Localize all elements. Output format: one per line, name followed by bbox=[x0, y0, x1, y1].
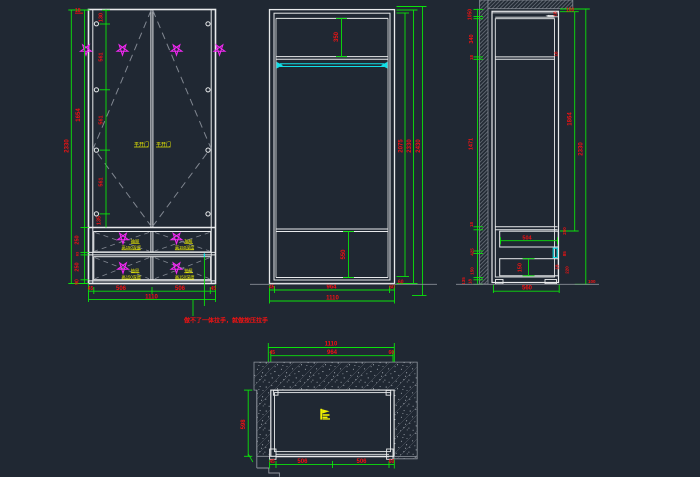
svg-text:425: 425 bbox=[470, 248, 475, 256]
svg-text:90: 90 bbox=[75, 279, 81, 285]
svg-text:45: 45 bbox=[270, 350, 276, 356]
svg-text:561: 561 bbox=[99, 52, 105, 61]
svg-text:60: 60 bbox=[389, 284, 395, 290]
svg-text:18: 18 bbox=[468, 279, 473, 285]
svg-text:18: 18 bbox=[469, 55, 474, 61]
svg-text:1050: 1050 bbox=[468, 9, 474, 20]
svg-text:1864: 1864 bbox=[568, 112, 574, 126]
svg-text:做不了一体拉手，就做按压拉手: 做不了一体拉手，就做按压拉手 bbox=[183, 317, 268, 325]
svg-text:560: 560 bbox=[522, 286, 533, 292]
svg-text:1110: 1110 bbox=[145, 294, 158, 300]
svg-text:550: 550 bbox=[341, 249, 347, 260]
svg-text:2430: 2430 bbox=[416, 139, 422, 153]
svg-text:150: 150 bbox=[470, 267, 475, 275]
svg-text:130: 130 bbox=[99, 13, 105, 22]
svg-text:45: 45 bbox=[269, 459, 275, 465]
svg-text:598: 598 bbox=[241, 419, 247, 430]
svg-text:506: 506 bbox=[116, 286, 127, 292]
svg-text:135: 135 bbox=[461, 277, 466, 285]
svg-text:2330: 2330 bbox=[407, 139, 413, 153]
svg-text:1471: 1471 bbox=[469, 138, 475, 150]
svg-text:45: 45 bbox=[269, 284, 275, 290]
svg-text:506: 506 bbox=[175, 286, 186, 292]
svg-text:18: 18 bbox=[554, 51, 559, 57]
svg-text:18: 18 bbox=[555, 264, 560, 270]
svg-text:45: 45 bbox=[88, 286, 94, 292]
svg-text:1110: 1110 bbox=[325, 341, 338, 347]
svg-text:150: 150 bbox=[518, 263, 524, 272]
svg-text:504: 504 bbox=[522, 236, 532, 242]
svg-text:45: 45 bbox=[211, 286, 217, 292]
svg-text:60: 60 bbox=[389, 459, 395, 465]
svg-text:250: 250 bbox=[562, 227, 567, 235]
svg-text:220: 220 bbox=[564, 266, 569, 274]
svg-text:350: 350 bbox=[334, 31, 340, 42]
svg-text:340: 340 bbox=[469, 34, 475, 43]
svg-text:85: 85 bbox=[562, 251, 567, 257]
svg-text:561: 561 bbox=[99, 115, 105, 124]
svg-text:2330: 2330 bbox=[65, 139, 71, 153]
svg-text:250: 250 bbox=[75, 235, 81, 244]
svg-text:135: 135 bbox=[97, 216, 103, 225]
svg-text:18: 18 bbox=[553, 11, 558, 17]
svg-text:964: 964 bbox=[326, 284, 337, 290]
svg-text:1654: 1654 bbox=[76, 108, 82, 122]
svg-text:250: 250 bbox=[75, 262, 81, 271]
svg-text:2330: 2330 bbox=[579, 142, 585, 156]
svg-text:60: 60 bbox=[389, 350, 395, 356]
svg-text:506: 506 bbox=[356, 459, 367, 465]
svg-text:83: 83 bbox=[75, 251, 80, 256]
svg-text:561: 561 bbox=[99, 177, 105, 186]
svg-text:18: 18 bbox=[469, 222, 474, 228]
svg-text:2075: 2075 bbox=[399, 139, 405, 153]
svg-text:1110: 1110 bbox=[326, 295, 339, 301]
svg-text:100: 100 bbox=[566, 8, 575, 14]
svg-text:506: 506 bbox=[297, 459, 308, 465]
svg-text:100: 100 bbox=[588, 279, 596, 284]
svg-text:964: 964 bbox=[327, 350, 338, 356]
